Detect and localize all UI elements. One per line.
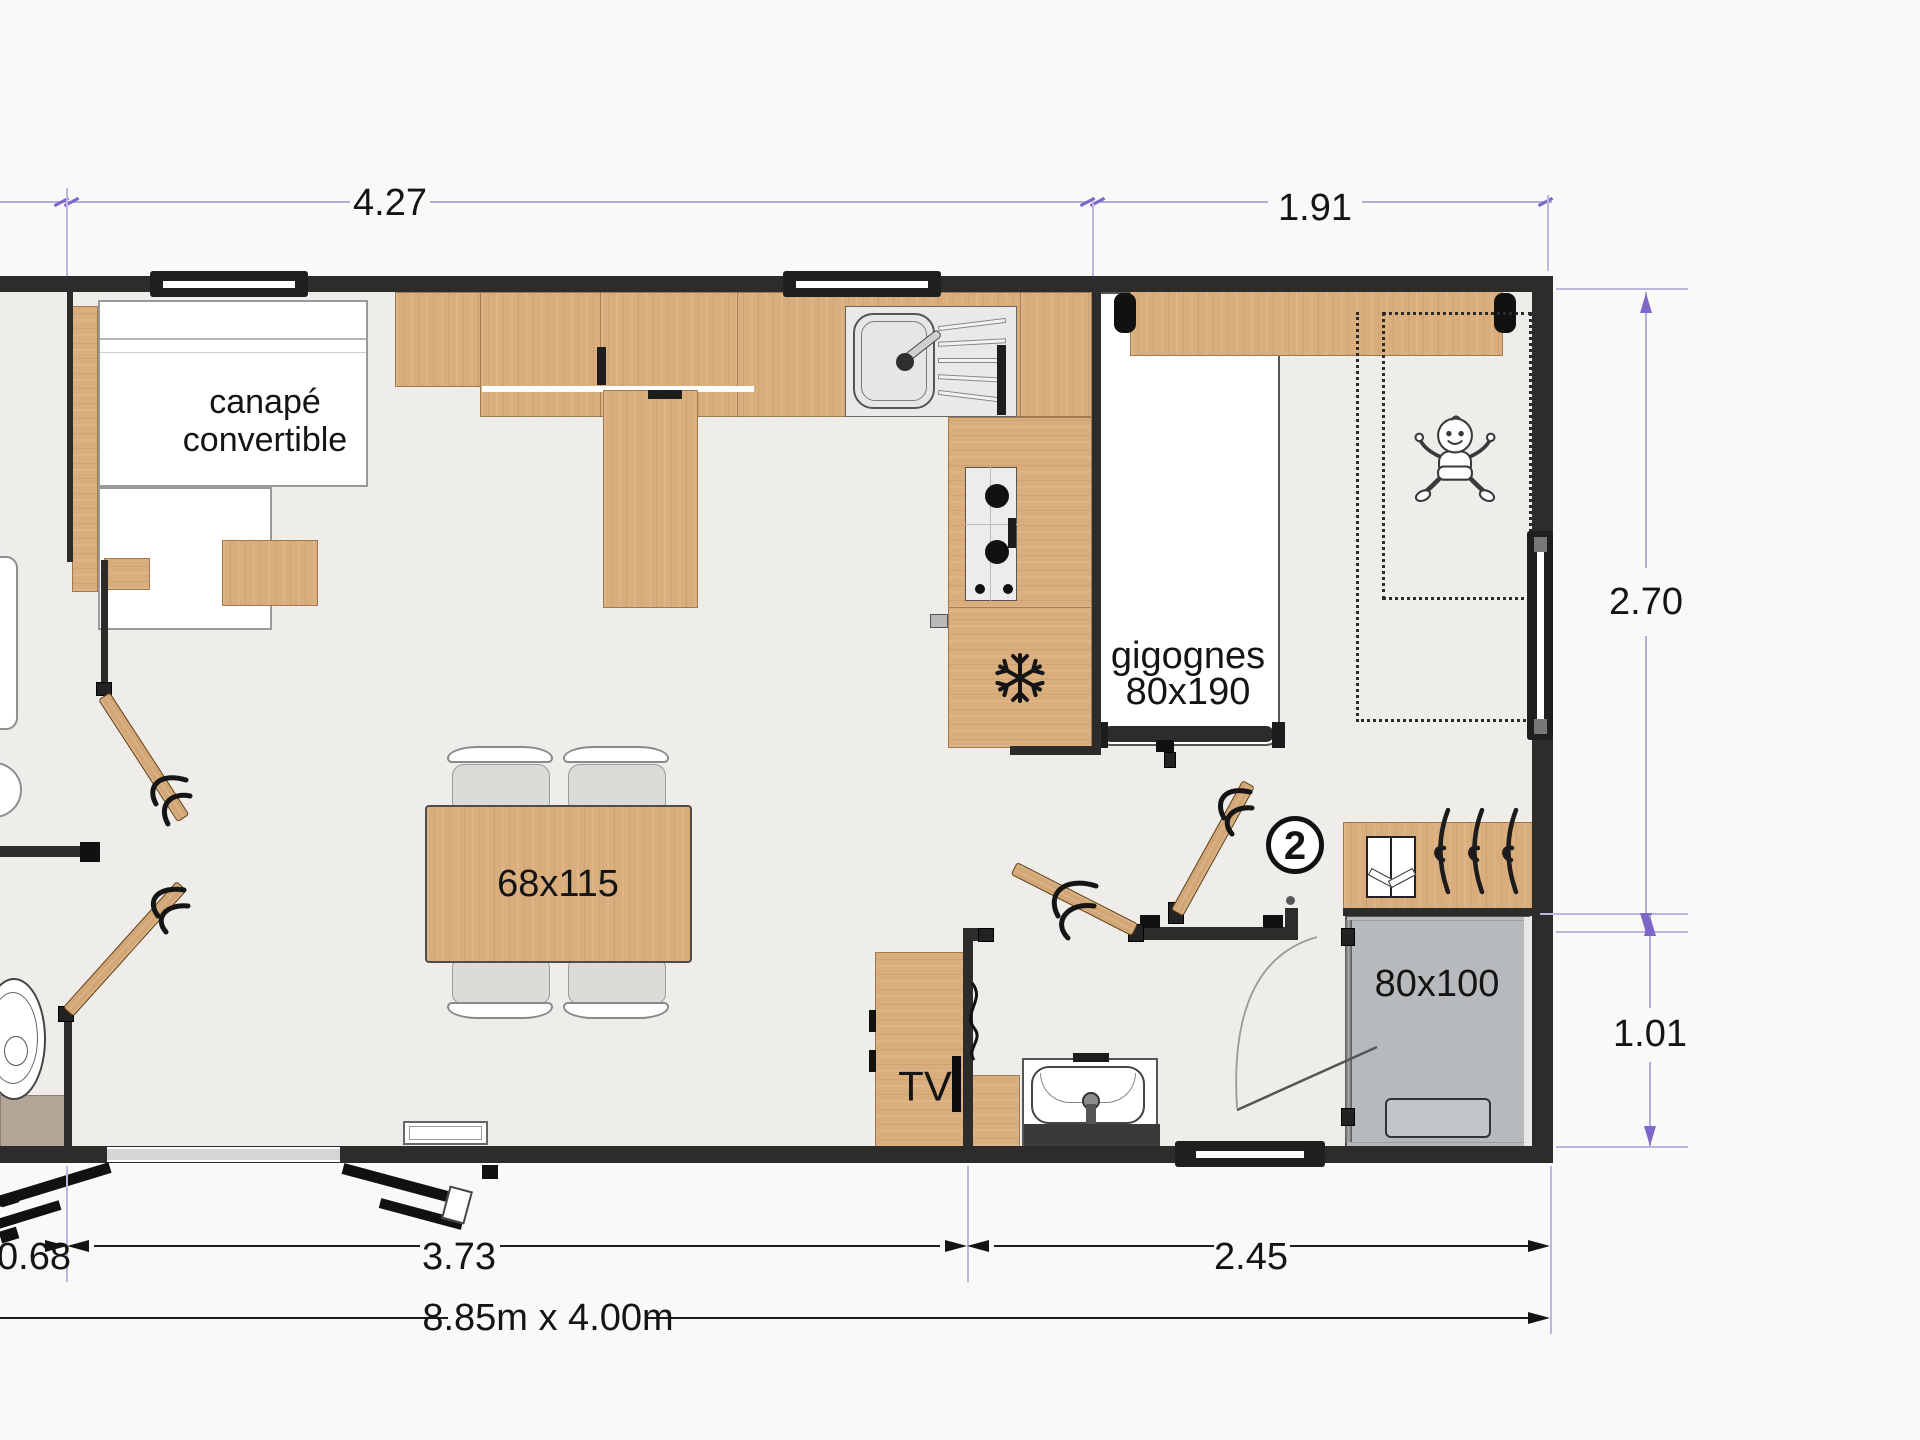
sofa-label-line2: convertible	[183, 422, 347, 458]
fridge-wall-stub	[1010, 746, 1100, 755]
doormat-inner	[409, 1126, 482, 1140]
toilet-flush	[4, 1036, 28, 1066]
dim-line	[500, 1245, 940, 1247]
door-hinge	[978, 928, 994, 942]
stove-knob	[1003, 584, 1013, 594]
kitchen-upper-cabinet	[395, 292, 481, 387]
kitchen-bedroom-wall	[1092, 290, 1101, 755]
baby-icon	[1412, 412, 1498, 506]
dim-arrow-down	[1644, 1126, 1656, 1146]
chair-back	[447, 1002, 553, 1019]
dim-bottom-right: 2.45	[1214, 1237, 1288, 1277]
step-rail	[342, 1163, 459, 1204]
dim-top-right: 1.91	[1278, 188, 1352, 228]
wc-wall-cap	[80, 842, 100, 862]
shower-door-hinge	[1341, 928, 1355, 946]
door-hinge	[1164, 752, 1176, 768]
shower-gap	[1524, 917, 1532, 1146]
dim-line	[94, 1245, 420, 1247]
dim-arrow	[1528, 1240, 1550, 1252]
drain-slat	[938, 358, 1006, 363]
shower-label: 80x100	[1375, 964, 1500, 1004]
coffee-table	[222, 540, 318, 606]
snowflake-icon	[993, 651, 1047, 705]
dim-arrow-up	[1640, 293, 1652, 313]
dim-extension	[1547, 195, 1549, 271]
chair-seat	[568, 956, 666, 1004]
window-cap	[1534, 537, 1547, 552]
tv-screen	[952, 1056, 961, 1112]
dim-arrow	[1528, 1312, 1550, 1324]
dim-extension	[967, 1166, 969, 1282]
dim-line	[1100, 201, 1268, 203]
chair-back	[563, 1002, 669, 1019]
window-glass	[163, 281, 295, 288]
dim-extension	[66, 188, 68, 276]
dim-line-overall	[0, 1317, 448, 1319]
kitchen-cabinet-column	[603, 390, 698, 608]
nesting-bed-label-line2: 80x190	[1126, 672, 1251, 712]
sink-bowl-inner	[861, 321, 927, 401]
dim-extension	[1556, 288, 1688, 290]
window-glass	[796, 281, 928, 288]
entrance-door-glass	[1196, 1151, 1304, 1158]
window-cap	[1534, 719, 1547, 734]
bedroom1-wall-upper	[67, 290, 73, 562]
vanity-top-tab	[1073, 1053, 1109, 1062]
cabinet-handle	[648, 390, 682, 399]
hall-partition	[1130, 927, 1298, 940]
bay-door	[107, 1147, 340, 1162]
dim-extension	[1556, 1146, 1688, 1148]
tv-cabinet	[875, 952, 967, 1148]
vanity-base	[1024, 1124, 1160, 1147]
counter-seam	[1020, 292, 1021, 417]
wc-wall-stub	[0, 846, 82, 857]
folded-clothes-divider	[1390, 836, 1392, 898]
dim-right-lower: 1.01	[1613, 1014, 1687, 1054]
dim-arrow-up	[1644, 916, 1656, 936]
stove-burner	[985, 484, 1009, 508]
door-pivot-dot	[1286, 896, 1295, 905]
tv-label: TV	[898, 1065, 952, 1110]
dim-extension	[1540, 913, 1688, 915]
dim-line	[0, 201, 350, 203]
door-stop	[1263, 915, 1283, 928]
bedroom1-wall-mid	[101, 560, 108, 694]
tv-side-tick	[869, 1050, 876, 1072]
floor-plan: canapé convertible 68x115	[0, 0, 1920, 1440]
stove-knob	[975, 584, 985, 594]
sofa-chaise-wood	[104, 558, 150, 590]
hanger-icon	[1432, 808, 1536, 896]
dim-bottom-center: 3.73	[422, 1237, 496, 1277]
sink-side-handle	[997, 345, 1006, 415]
tv-side-tick	[869, 1010, 876, 1032]
tv-wall	[963, 928, 973, 1147]
chair-back	[447, 746, 553, 763]
dim-top-left: 4.27	[353, 183, 427, 223]
trundle-outline-h	[1356, 719, 1532, 722]
trundle-outline-v	[1356, 312, 1359, 722]
dim-arrow	[945, 1240, 967, 1252]
sofa-armrest	[72, 306, 98, 592]
chair-back	[563, 746, 669, 763]
step-foot	[0, 1191, 19, 1208]
sofa-label-line1: canapé	[209, 384, 321, 420]
counter-seam	[737, 292, 738, 417]
dim-arrow	[967, 1240, 989, 1252]
dim-line	[1290, 1245, 1528, 1247]
sofa-seam	[100, 338, 366, 340]
wc-wall-lower	[64, 1006, 72, 1147]
dim-extension	[1550, 1166, 1552, 1334]
dim-line	[1362, 201, 1552, 203]
console	[970, 1075, 1020, 1147]
fridge-handle	[930, 614, 948, 628]
dim-line-overall	[648, 1317, 1540, 1319]
exterior-step-block	[482, 1165, 498, 1179]
dim-overall: 8.85m x 4.00m	[422, 1298, 673, 1338]
dim-line	[430, 201, 1090, 203]
wardrobe-base-wall	[1343, 908, 1537, 916]
oven-handle	[597, 347, 606, 385]
bedroom2-number: 2	[1284, 825, 1306, 867]
dim-line-v	[1645, 292, 1647, 568]
shower-door-hinge	[1341, 1108, 1355, 1126]
chair-seat	[452, 956, 550, 1004]
partition-stub	[1285, 908, 1298, 940]
bed-foot-bar	[1103, 726, 1274, 742]
bed1-sliver	[0, 556, 18, 730]
dim-bottom-left: 0.68	[0, 1237, 71, 1277]
dim-extension	[1092, 201, 1094, 276]
door-stop	[1156, 740, 1174, 752]
dim-right-upper: 2.70	[1609, 582, 1683, 622]
dim-line	[994, 1245, 1214, 1247]
dining-table-label: 68x115	[497, 864, 619, 904]
dim-extension	[1556, 931, 1688, 933]
dim-line-v	[1645, 636, 1647, 933]
toilet-cabinet	[0, 1095, 66, 1147]
bed-foot	[1272, 722, 1285, 748]
stove-burner	[985, 540, 1009, 564]
shower-tray	[1385, 1098, 1491, 1138]
window-glass-right	[1537, 552, 1544, 719]
stove-control	[1008, 518, 1016, 548]
sofa-seam2	[100, 352, 366, 353]
faucet-icon	[896, 353, 914, 371]
wall-lamp	[1114, 293, 1136, 333]
